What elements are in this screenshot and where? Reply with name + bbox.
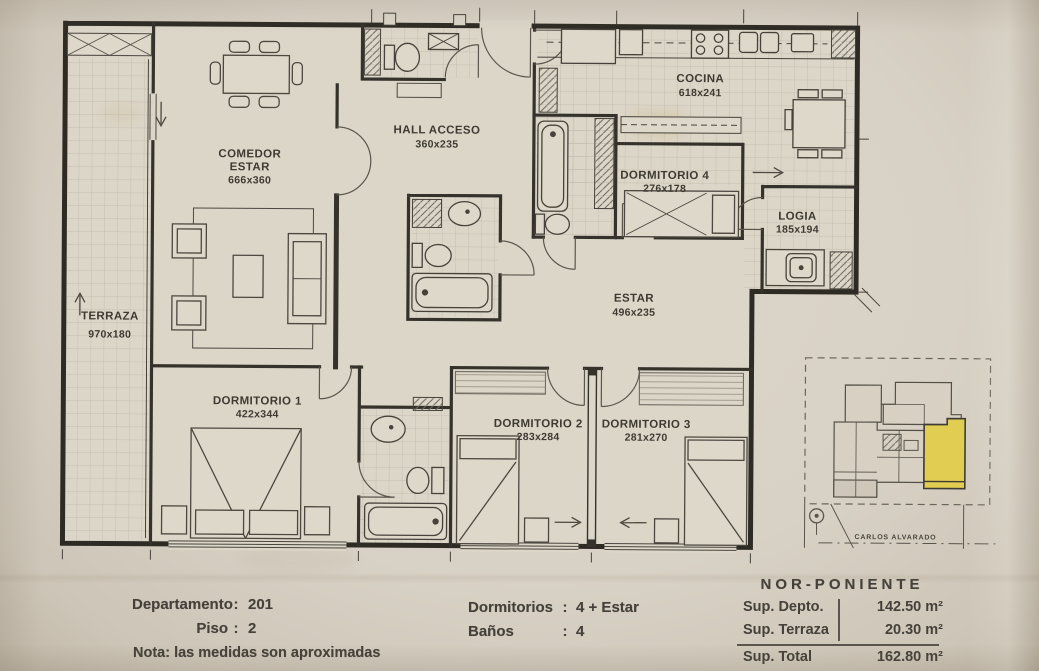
room-dims-dorm4: 276x178 [643, 183, 686, 195]
orientation-title: NOR-PONIENTE [735, 576, 949, 593]
nota-text: Nota: las medidas son aproximadas [133, 645, 380, 661]
room-dims-comedor: 666x360 [228, 174, 271, 186]
floorplan-drawing: COMEDOR ESTAR 666x360 HALL ACCESO 360x23… [0, 0, 1039, 671]
room-dims-cocina: 618x241 [679, 87, 722, 99]
kitchen-bath [535, 121, 570, 234]
room-dims-dorm1: 422x344 [236, 408, 279, 420]
room-label-comedor-2: ESTAR [230, 161, 270, 173]
dormitorios-sep: : [558, 599, 572, 616]
banos-row: Baños:4 [468, 623, 584, 640]
sup-terraza-value: 20.30 m² [885, 622, 943, 638]
room-dims-dorm2: 283x284 [517, 431, 560, 443]
sup-total-label: Sup. Total [743, 649, 812, 665]
stove-icon [691, 30, 728, 58]
room-dims-dorm3: 281x270 [625, 432, 668, 444]
sup-total-row: Sup. Total 162.80 m² [743, 649, 943, 665]
party-wall-dorm2-dorm3 [587, 368, 596, 546]
room-label-terraza: TERRAZA [81, 310, 139, 322]
room-label-logia: LOGIA [778, 211, 816, 223]
banos-label: Baños [468, 623, 558, 640]
table-horizontal-rule [737, 644, 939, 646]
banos-sep: : [558, 623, 572, 640]
superficie-table: Sup. Depto. 142.50 m² Sup. Terraza 20.30… [735, 598, 949, 670]
kitchen-table [785, 90, 845, 158]
piso-row: Piso:2 [132, 620, 256, 637]
room-dims-terraza: 970x180 [88, 328, 131, 340]
sup-terraza-row: Sup. Terraza 20.30 m² [743, 622, 943, 638]
sup-depto-row: Sup. Depto. 142.50 m² [743, 599, 943, 615]
sup-depto-value: 142.50 m² [877, 599, 943, 615]
departamento-label: Departamento [132, 596, 228, 613]
room-label-hall: HALL ACCESO [394, 124, 481, 137]
street [804, 504, 998, 549]
sup-depto-label: Sup. Depto. [743, 599, 824, 615]
unit-highlight [924, 418, 965, 488]
room-label-estar: ESTAR [614, 293, 654, 305]
room-label-dorm3: DORMITORIO 3 [602, 419, 691, 432]
piso-sep: : [228, 620, 244, 637]
logia-fixtures [766, 250, 824, 286]
site-street-label: CARLOS ALVARADO [855, 534, 937, 542]
dormitorios-row: Dormitorios:4 + Estar [468, 599, 639, 616]
banos-value: 4 [576, 623, 584, 640]
room-dims-hall: 360x235 [415, 138, 458, 150]
piso-label: Piso [132, 620, 228, 637]
departamento-sep: : [228, 596, 244, 613]
dormitorios-value: 4 + Estar [576, 599, 639, 616]
room-label-cocina: COCINA [676, 73, 724, 85]
dormitorios-label: Dormitorios [468, 599, 558, 616]
room-label-comedor: COMEDOR [218, 148, 281, 160]
room-dims-estar: 496x235 [612, 307, 655, 319]
room-label-dorm4: DORMITORIO 4 [620, 170, 709, 183]
sup-terraza-label: Sup. Terraza [743, 622, 829, 638]
superficie-panel: NOR-PONIENTE Sup. Depto. 142.50 m² Sup. … [735, 576, 949, 670]
piso-value: 2 [248, 620, 256, 637]
room-dims-logia: 185x194 [776, 224, 819, 236]
room-label-dorm1: DORMITORIO 1 [213, 395, 302, 408]
departamento-value: 201 [248, 596, 273, 613]
room-label-dorm2: DORMITORIO 2 [494, 418, 583, 431]
site-plan-inset: CARLOS ALVARADO [804, 358, 999, 549]
sup-total-value: 162.80 m² [877, 649, 943, 665]
departamento-row: Departamento:201 [132, 596, 273, 613]
floorplan-photo: COMEDOR ESTAR 666x360 HALL ACCESO 360x23… [0, 0, 1039, 671]
bed-dorm4 [624, 191, 738, 238]
